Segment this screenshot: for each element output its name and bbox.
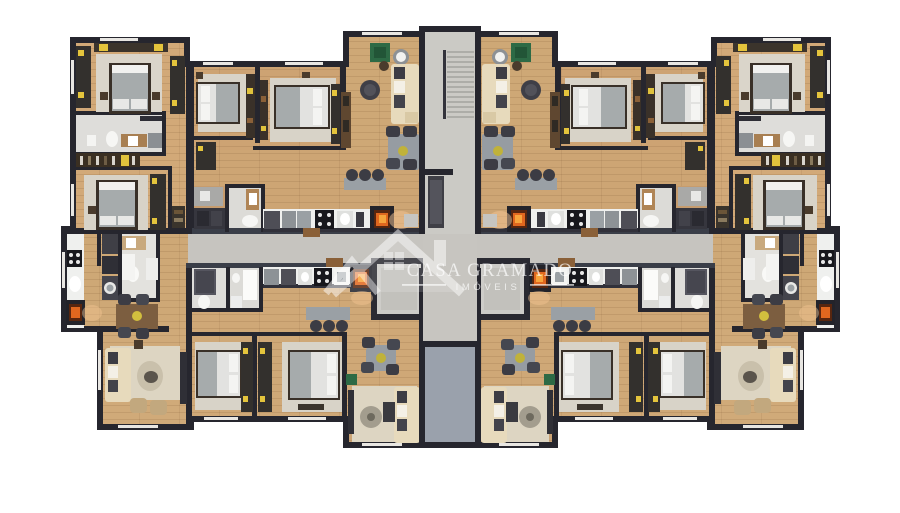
- svg-text:CASA GRAMADO: CASA GRAMADO: [407, 261, 574, 281]
- svg-text:IMÓVEIS: IMÓVEIS: [456, 282, 521, 293]
